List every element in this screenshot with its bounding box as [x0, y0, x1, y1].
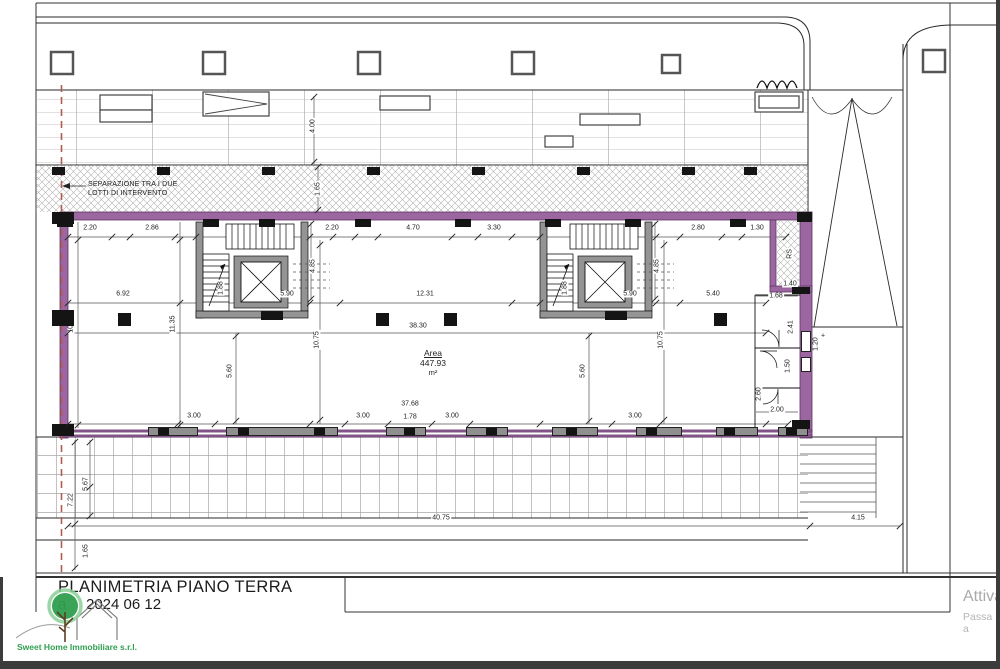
dimension-label: 3.00 [627, 413, 643, 420]
wall-slab [148, 427, 198, 436]
column-block [545, 219, 561, 227]
dimension-tick [316, 241, 323, 248]
column-block [52, 212, 74, 224]
dimension-tick [71, 438, 78, 445]
plan-sheet: 4.001.652.202.862.204.703.302.801.306.92… [0, 0, 1000, 669]
dimension-label: 4.85 [310, 258, 317, 274]
column-block [566, 428, 577, 435]
dimension-tick [718, 233, 725, 240]
dimension-tick [74, 421, 81, 428]
column-block [786, 428, 797, 435]
dimension-label: 1.30 [749, 225, 765, 232]
dimension-label: 3.00 [186, 413, 202, 420]
column-block [646, 428, 657, 435]
area-unit: m² [420, 368, 446, 377]
dimension-label: 2.20 [82, 225, 98, 232]
dimension-tick [74, 236, 81, 243]
dimension-tick [676, 233, 683, 240]
dimension-tick [351, 233, 358, 240]
dimension-label: 1.65 [315, 181, 322, 197]
dimension-tick [508, 299, 515, 306]
dimension-label: 5.60 [227, 363, 234, 379]
dimension-label: 2.41 [788, 319, 795, 335]
column-block [797, 212, 812, 222]
company-name: Sweet Home Immobiliare s.r.l. [17, 642, 137, 652]
dimension-tick [211, 420, 218, 427]
dimension-tick [652, 233, 659, 240]
dimension-label: 40.75 [431, 515, 451, 522]
dimension-label: 1.88 [218, 280, 225, 296]
dimension-tick [108, 233, 115, 240]
dimension-label: 5.90 [279, 291, 295, 298]
column-block [238, 428, 249, 435]
dimension-tick [310, 93, 317, 100]
dimension-tick [341, 420, 348, 427]
dimension-tick [310, 158, 317, 165]
column-block [376, 313, 389, 326]
dimension-tick [306, 233, 313, 240]
separation-note-line1: SEPARAZIONE TRA I DUE [88, 181, 178, 190]
dimension-label: 3.30 [486, 225, 502, 232]
dimension-label: 4.15 [850, 515, 866, 522]
logo-hill-swoosh [16, 625, 70, 638]
dimension-tick [374, 233, 381, 240]
dimension-tick [329, 233, 336, 240]
dimension-tick [336, 299, 343, 306]
dimension-label: 2.60 [756, 386, 763, 402]
dimension-tick [71, 520, 78, 527]
column-block [203, 219, 219, 227]
dimension-tick [508, 233, 515, 240]
dimension-tick [176, 236, 183, 243]
watermark-line1: Attiva [963, 588, 1000, 606]
dimension-tick [536, 420, 543, 427]
dimension-tick [660, 241, 667, 248]
dimension-tick [762, 329, 769, 336]
column-block [404, 428, 415, 435]
separation-note-line2: LOTTI DI INTERVENTO [88, 190, 178, 199]
dimension-tick [676, 299, 683, 306]
viewer-bottom-edge [0, 661, 1000, 669]
dimension-label: 4.85 [654, 258, 661, 274]
dimension-tick [738, 233, 745, 240]
column-block [730, 219, 746, 227]
dimension-label: 10.75 [658, 330, 665, 350]
dimension-label: 5.90 [622, 291, 638, 298]
column-block [472, 167, 485, 175]
dimension-tick [608, 420, 615, 427]
dimension-tick [474, 233, 481, 240]
dimension-label: 2.86 [144, 225, 160, 232]
wall-slab [716, 427, 758, 436]
dimension-tick [176, 299, 183, 306]
column-block [714, 313, 727, 326]
dimension-tick [86, 512, 93, 519]
dimension-label: 4.70 [405, 225, 421, 232]
watermark-line2: Passa a [963, 611, 1000, 635]
dimension-label: 5.40 [705, 291, 721, 298]
dimension-tick [126, 233, 133, 240]
viewer-right-edge [996, 0, 1000, 669]
dimension-label: 5.60 [580, 363, 587, 379]
column-block [605, 311, 627, 320]
dimension-tick [192, 233, 199, 240]
dimension-tick [448, 233, 455, 240]
dimension-tick [64, 233, 71, 240]
logo-tree-icon [49, 590, 81, 642]
window-opening [801, 331, 811, 352]
dimension-label: 1.88 [562, 280, 569, 296]
column-block [724, 428, 735, 435]
window-opening [801, 357, 811, 372]
dimension-tick [232, 417, 239, 424]
dimension-tick [896, 522, 903, 529]
dimension-tick [762, 299, 769, 306]
separation-note: SEPARAZIONE TRA I DUE LOTTI DI INTERVENT… [88, 181, 178, 199]
dimension-tick [316, 416, 323, 423]
dimension-label: 1.68 [768, 293, 784, 300]
dimension-tick [536, 233, 543, 240]
logo-house-outline [77, 600, 117, 640]
dimension-label: 11.35 [170, 315, 177, 334]
column-block [52, 424, 74, 436]
dimension-label: 10.75 [314, 330, 321, 350]
dimension-label: 2.20 [324, 225, 340, 232]
dimension-label: 1.65 [83, 543, 90, 559]
dimension-label: 1.78 [402, 414, 418, 421]
dimension-label: 3.00 [355, 413, 371, 420]
column-block [367, 167, 380, 175]
column-block [486, 428, 497, 435]
column-block [792, 287, 810, 294]
dimension-tick [314, 206, 321, 213]
dimension-tick [307, 220, 314, 227]
dimension-tick [782, 233, 789, 240]
dimension-tick [536, 299, 543, 306]
column-block [625, 219, 641, 227]
column-block [261, 311, 283, 320]
dimension-tick [232, 332, 239, 339]
dimension-tick [651, 220, 658, 227]
dimension-label: + [820, 333, 826, 340]
dimension-label: 4.00 [310, 118, 317, 134]
dimension-tick [171, 233, 178, 240]
dimension-tick [86, 438, 93, 445]
dimension-label: 2.00 [769, 407, 785, 414]
dimension-tick [314, 163, 321, 170]
column-block [577, 167, 590, 175]
column-block [52, 167, 65, 175]
plan-annotations: 4.001.652.202.862.204.703.302.801.306.92… [0, 0, 1000, 669]
dimension-tick [585, 417, 592, 424]
dimension-label: RS [787, 248, 794, 260]
area-callout: Area 447.93 m² [420, 348, 446, 377]
dimension-label: 1.20 [813, 336, 820, 352]
wall-slab [636, 427, 682, 436]
area-label: Area [420, 348, 446, 358]
column-block [455, 219, 471, 227]
dimension-label: 1.50 [785, 358, 792, 374]
dimension-label: 3.00 [444, 413, 460, 420]
dimension-tick [585, 332, 592, 339]
dimension-label: 12.31 [415, 291, 435, 298]
dimension-label: 6.92 [115, 291, 131, 298]
column-block [158, 428, 169, 435]
dimension-label: 2.80 [690, 225, 706, 232]
dimension-label: 38.30 [408, 323, 428, 330]
dimension-tick [762, 420, 769, 427]
column-block [355, 219, 371, 227]
dimension-label: 37.68 [400, 401, 420, 408]
dimension-tick [428, 420, 435, 427]
column-block [444, 313, 457, 326]
dimension-label: 7.22 [68, 492, 75, 508]
column-block [118, 313, 131, 326]
dimension-tick [64, 299, 71, 306]
column-block [314, 428, 325, 435]
column-block [744, 167, 757, 175]
viewer-left-edge [0, 577, 3, 669]
dimension-tick [806, 522, 813, 529]
column-block [792, 420, 810, 429]
column-block [259, 219, 275, 227]
column-block [262, 167, 275, 175]
column-block [52, 310, 74, 326]
area-value: 447.93 [420, 358, 446, 368]
column-block [682, 167, 695, 175]
column-block [157, 167, 170, 175]
dimension-tick [660, 416, 667, 423]
